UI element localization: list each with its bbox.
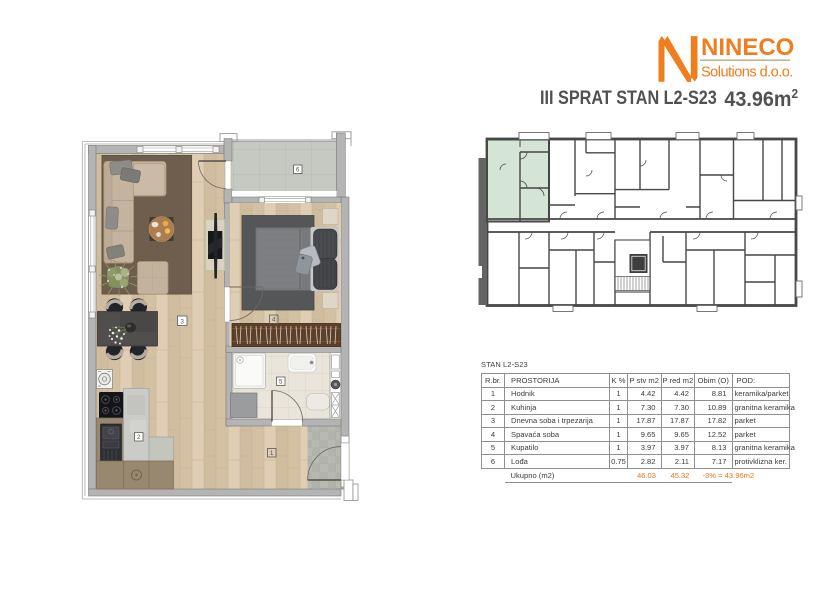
svg-text:Solutions d.o.o.: Solutions d.o.o. bbox=[701, 65, 793, 81]
svg-text:NINECO: NINECO bbox=[701, 34, 794, 61]
